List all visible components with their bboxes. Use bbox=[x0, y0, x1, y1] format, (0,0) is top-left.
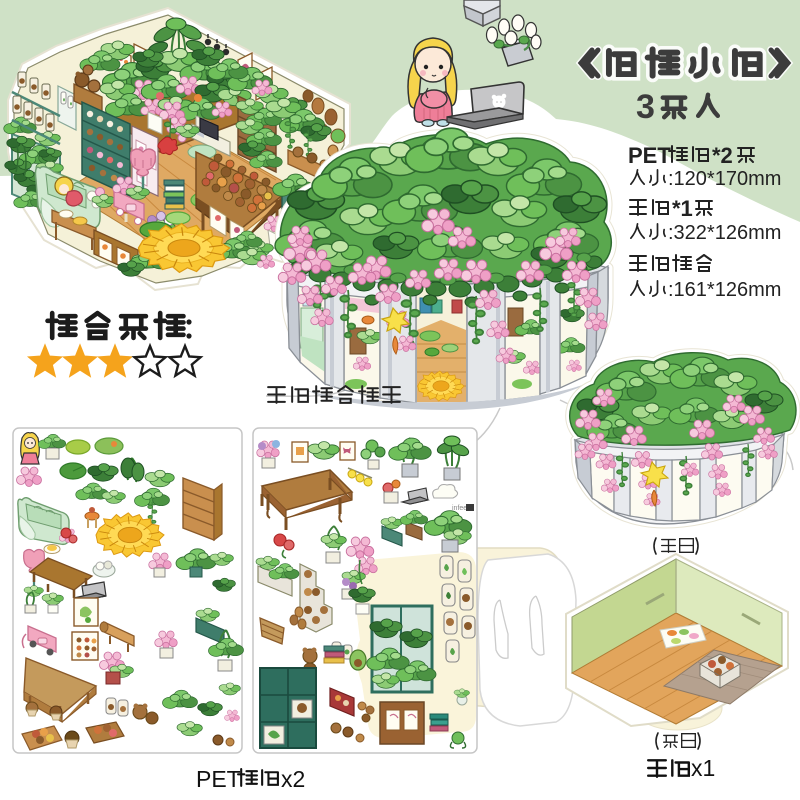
svg-text:x2: x2 bbox=[281, 766, 305, 792]
svg-text:PET: PET bbox=[628, 143, 671, 168]
svg-text:3: 3 bbox=[636, 88, 655, 126]
svg-text::120*170mm: :120*170mm bbox=[668, 168, 781, 190]
svg-text:*2: *2 bbox=[712, 143, 733, 168]
svg-text::161*126mm: :161*126mm bbox=[668, 279, 781, 301]
svg-text::322*126mm: :322*126mm bbox=[668, 222, 781, 244]
svg-text:x1: x1 bbox=[691, 755, 715, 781]
svg-text:*1: *1 bbox=[672, 196, 693, 221]
svg-text:PET: PET bbox=[196, 766, 241, 792]
